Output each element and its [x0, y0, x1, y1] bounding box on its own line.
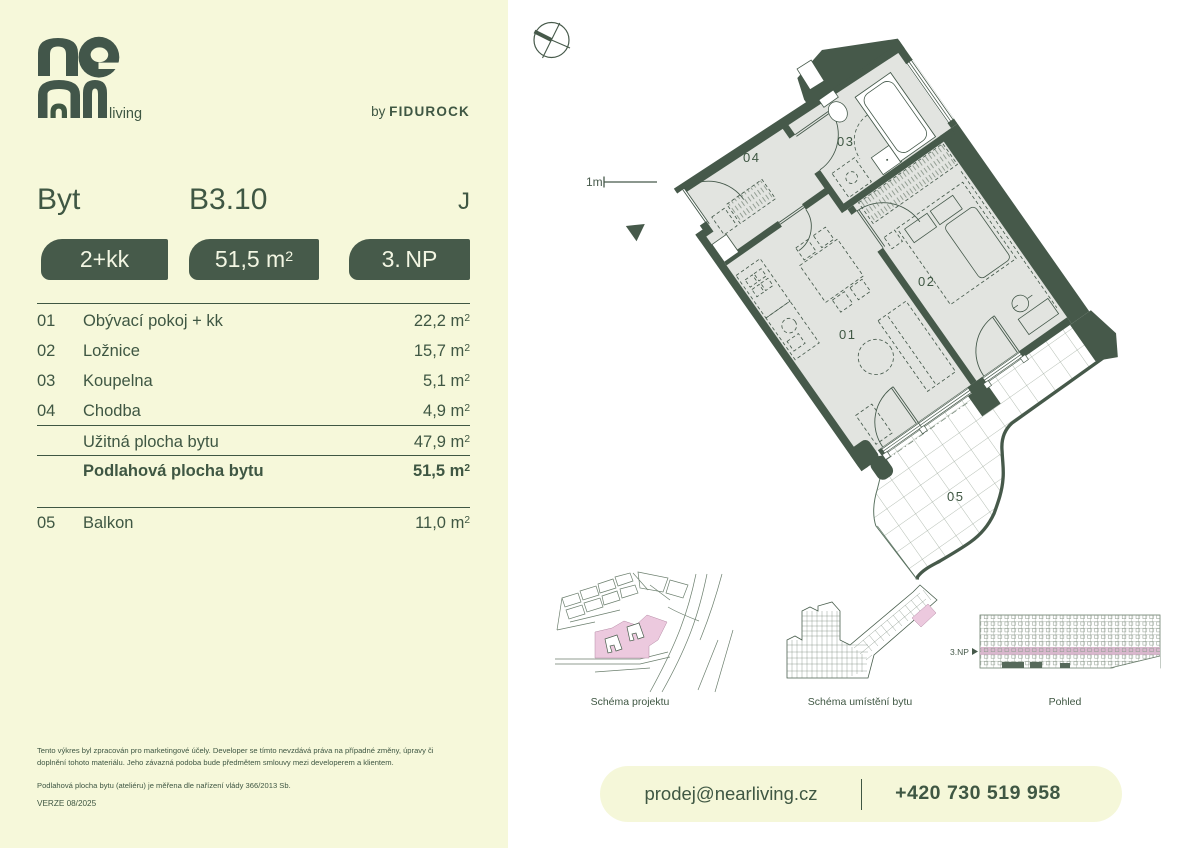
svg-text:3.NP: 3.NP — [950, 647, 969, 657]
svg-text:1m: 1m — [586, 175, 603, 189]
